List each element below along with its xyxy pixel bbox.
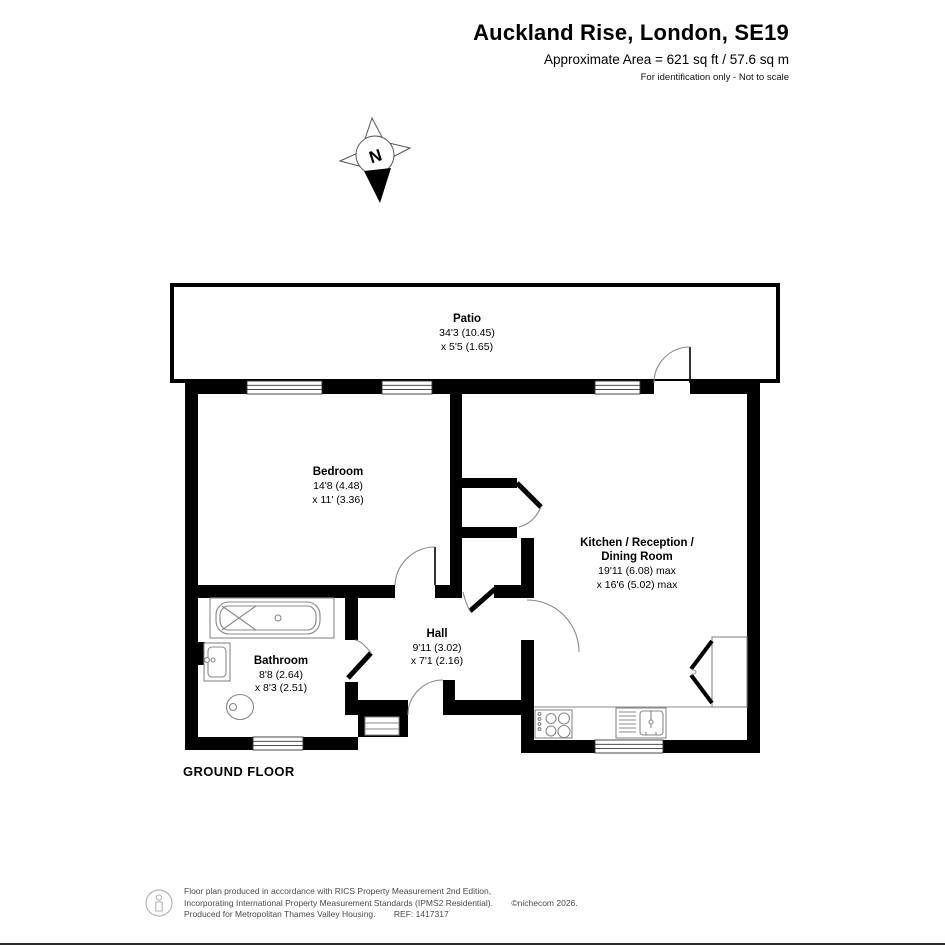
footer-line3: Produced for Metropolitan Thames Valley … [184, 909, 376, 919]
nichecom-logo-icon [143, 887, 175, 919]
closet-door [517, 483, 541, 527]
floorplan-page: Auckland Rise, London, SE19 Approximate … [0, 0, 945, 945]
bedroom-dim1: 14'8 (4.48) [313, 480, 363, 492]
toilet [227, 695, 254, 720]
bedroom-dim2: x 11' (3.36) [312, 494, 363, 506]
kitchen-window-top [595, 381, 640, 394]
patio-dim2: x 5'5 (1.65) [441, 341, 493, 353]
hall-label: Hall 9'11 (3.02) x 7'1 (2.16) [411, 628, 463, 667]
basin [204, 643, 230, 681]
kitchen-window-bottom [595, 740, 663, 753]
hall-dim2: x 7'1 (2.16) [411, 655, 463, 667]
hall-cupboard [365, 717, 399, 735]
entrance-door [408, 680, 443, 715]
sink [616, 708, 666, 738]
bathtub [210, 598, 334, 638]
bedroom-door [395, 547, 435, 585]
kitchen-dim1: 19'11 (6.08) max [598, 565, 676, 577]
footer-copyright: ©nichecom 2026. [511, 898, 577, 908]
footer-line1: Floor plan produced in accordance with R… [184, 886, 491, 896]
floorplan-drawing: N [0, 0, 945, 945]
patio-dim1: 34'3 (10.45) [439, 327, 495, 339]
bifold-cupboard [691, 637, 747, 707]
bathroom-door [348, 640, 371, 678]
kitchen-name-line2: Dining Room [601, 551, 673, 563]
floor-label: GROUND FLOOR [183, 764, 295, 779]
footer-text: Floor plan produced in accordance with R… [184, 886, 578, 921]
bedroom-window-2 [382, 381, 432, 394]
footer: Floor plan produced in accordance with R… [143, 886, 578, 921]
hob [535, 710, 572, 738]
footer-ref: REF: 1417317 [394, 909, 449, 919]
bathroom-dim1: 8'8 (2.64) [259, 669, 303, 681]
bedroom-label: Bedroom 14'8 (4.48) x 11' (3.36) [312, 466, 363, 506]
hall-dim1: 9'11 (3.02) [412, 642, 461, 654]
bedroom-window-1 [247, 381, 322, 394]
kitchen-dim2: x 16'6 (5.02) max [597, 579, 679, 591]
footer-line2: Incorporating International Property Mea… [184, 898, 493, 908]
bathroom-name: Bathroom [254, 655, 308, 667]
bedroom-name: Bedroom [313, 466, 363, 478]
bathroom-label: Bathroom 8'8 (2.64) x 8'3 (2.51) [254, 655, 308, 694]
kitchen-label: Kitchen / Reception / Dining Room 19'11 … [580, 537, 695, 591]
patio-name: Patio [453, 313, 481, 325]
hall-name: Hall [426, 628, 447, 640]
north-compass-icon: N [340, 118, 410, 203]
bathroom-dim2: x 8'3 (2.51) [255, 682, 307, 694]
kitchen-name-line1: Kitchen / Reception / [580, 537, 695, 549]
bathroom-window [253, 737, 303, 750]
